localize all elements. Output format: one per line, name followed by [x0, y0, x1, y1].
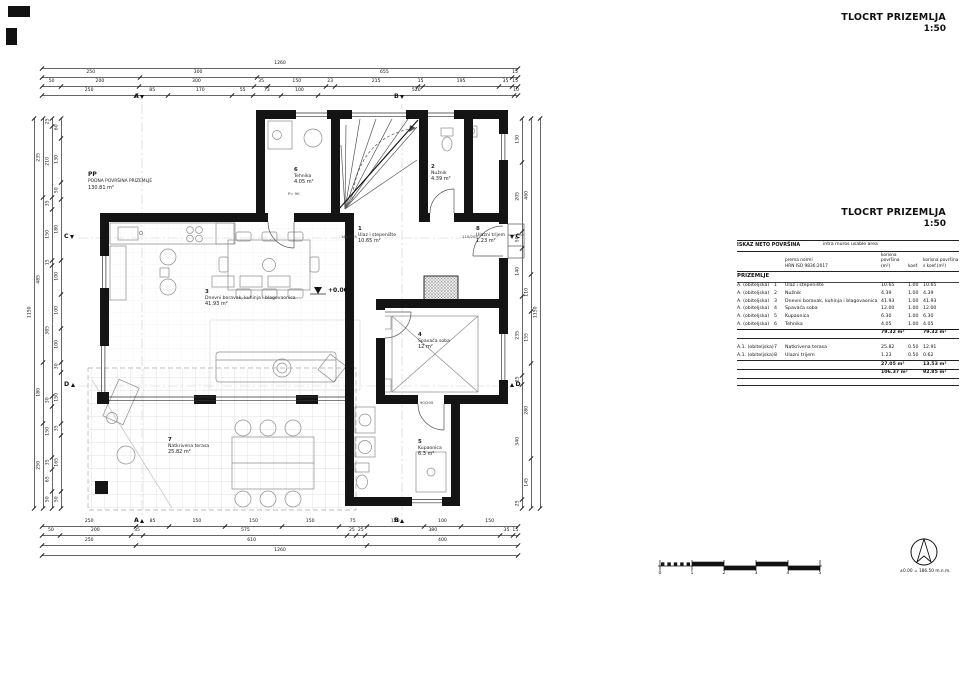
- drawing-scale: 1:50: [841, 24, 946, 36]
- table-row: A. (obiteljska)4Spavaća soba 12.001.0012…: [737, 306, 959, 314]
- terrace-deck: [88, 368, 356, 510]
- stairs: [338, 119, 418, 210]
- table-row: A. (obiteljska)2Nužnik 4.391.004.39: [737, 291, 959, 299]
- area-table-header: ISKAZ NETO POVRŠINA intra muros usable a…: [737, 240, 959, 252]
- table-subtotal-row: 79.32 m²79.32 m²: [737, 329, 959, 338]
- area-table-subheader: prema normiHRN ISO 9836:2017 korisna pov…: [737, 252, 959, 272]
- title-block-mid: TLOCRT PRIZEMLJA 1:50: [841, 207, 946, 231]
- table-total-row: 106.37 m²92.85 m²: [737, 369, 959, 379]
- north-arrow-icon: [911, 539, 937, 565]
- table-subtotal-row: 27.05 m²13.53 m²: [737, 360, 959, 369]
- table-row: A.1. (obiteljska)7Natkrivena terasa 25.8…: [737, 345, 959, 353]
- corner-marks: [6, 6, 30, 45]
- drawing-scale: 1:50: [841, 219, 946, 231]
- drawing-title: TLOCRT PRIZEMLJA: [841, 12, 946, 24]
- table-row: A. (obiteljska)6Tehnika 4.051.004.05: [737, 321, 959, 329]
- table-row: A. (obiteljska)1Ulaz i stepenište 10.651…: [737, 283, 959, 291]
- area-table: ISKAZ NETO POVRŠINA intra muros usable a…: [737, 240, 959, 386]
- table-section-title: PRIZEMLJE: [737, 272, 959, 283]
- scale-bar: [658, 560, 822, 570]
- table-row: A. (obiteljska)3Dnevni boravak, kuhinja …: [737, 298, 959, 306]
- title-block-top: TLOCRT PRIZEMLJA 1:50: [841, 12, 946, 36]
- installation-shaft: [424, 276, 458, 300]
- drawing-title: TLOCRT PRIZEMLJA: [841, 207, 946, 219]
- table-row: A.1. (obiteljska)8Ulazni trijem 1.230.50…: [737, 353, 959, 361]
- table-row: A. (obiteljska)5Kupaonica 6.301.006.30: [737, 314, 959, 322]
- porch-steps: [508, 224, 524, 258]
- sheet: { "titles": { "top": { "title": "TLOCRT …: [0, 0, 960, 680]
